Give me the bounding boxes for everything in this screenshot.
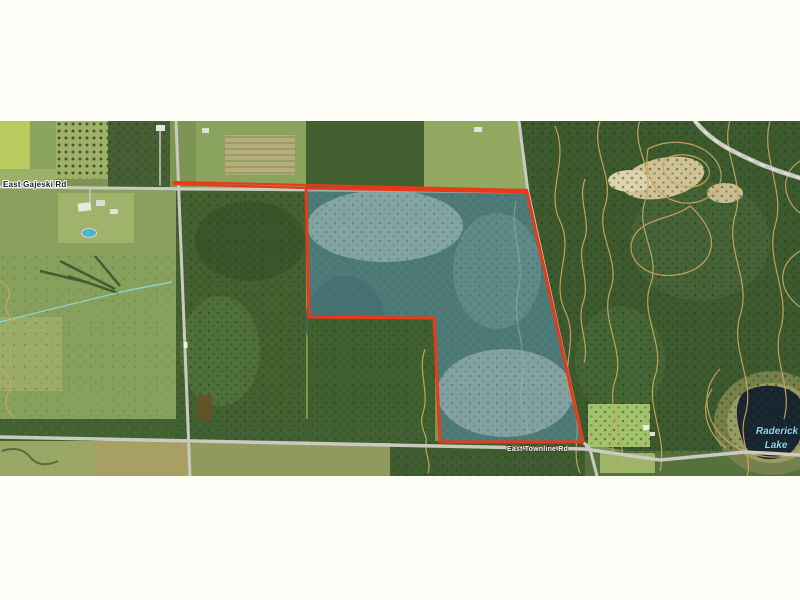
svg-text:Raderick: Raderick [756, 426, 799, 437]
swimming-pool [82, 229, 97, 238]
letterbox-background: East Gajeski Rd East Townline Rd Raderic… [0, 0, 800, 600]
map-canvas: East Gajeski Rd East Townline Rd Raderic… [0, 121, 800, 476]
aerial-map-image: East Gajeski Rd East Townline Rd Raderic… [0, 121, 800, 476]
svg-text:Lake: Lake [765, 440, 788, 451]
label-east-gajeski-rd: East Gajeski Rd [3, 180, 66, 189]
label-east-townline-rd: East Townline Rd [507, 446, 568, 453]
